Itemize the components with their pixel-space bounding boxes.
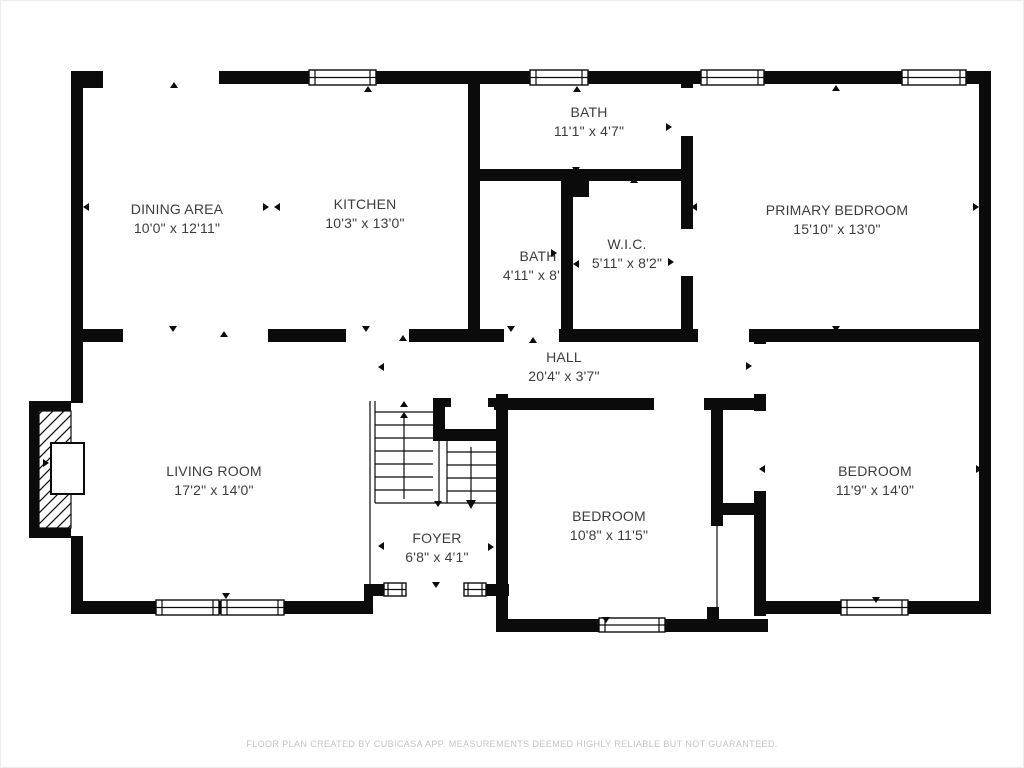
window [530, 70, 588, 85]
opening-marker-down [169, 326, 177, 332]
opening-marker-down [507, 326, 515, 332]
window [384, 583, 406, 596]
stairs [370, 401, 717, 616]
opening-marker-up [529, 337, 537, 343]
opening-marker-down [222, 593, 230, 599]
opening-marker-left [274, 203, 280, 211]
opening-marker-left [378, 363, 384, 371]
walls [29, 71, 991, 632]
opening-marker-down [362, 326, 370, 332]
floor-plan: DINING AREA 10'0" x 12'11" KITCHEN 10'3"… [0, 0, 1024, 768]
fireplace [39, 411, 84, 528]
window [156, 600, 219, 615]
opening-marker-left [573, 260, 579, 268]
opening-marker-down [434, 501, 442, 507]
window [221, 600, 284, 615]
opening-marker-up [832, 85, 840, 91]
opening-marker-down [432, 582, 440, 588]
window [701, 70, 764, 85]
window [841, 600, 908, 615]
fireplace-firebox [51, 443, 84, 494]
opening-marker-left [378, 542, 384, 550]
window [599, 618, 665, 632]
opening-marker-up [364, 86, 372, 92]
opening-marker-right [973, 203, 979, 211]
opening-marker-left [759, 465, 765, 473]
opening-marker-right [746, 362, 752, 370]
opening-marker-up [170, 82, 178, 88]
stairs-up-arrow [400, 401, 408, 407]
window [309, 70, 376, 85]
opening-marker-right [666, 123, 672, 131]
opening-marker-right [488, 543, 494, 551]
opening-marker-right [551, 249, 557, 257]
disclaimer-text: FLOOR PLAN CREATED BY CUBICASA APP. MEAS… [1, 739, 1023, 749]
opening-marker-right [263, 203, 269, 211]
stairs-down-arrow [466, 500, 476, 509]
opening-marker-right [668, 258, 674, 266]
windows [156, 70, 966, 632]
window [464, 583, 486, 596]
window [902, 70, 966, 85]
opening-marker-left [83, 203, 89, 211]
floor-plan-canvas [1, 1, 1024, 768]
opening-marker-up [573, 86, 581, 92]
opening-marker-up [220, 331, 228, 337]
opening-marker-up [399, 335, 407, 341]
opening-markers [43, 82, 982, 623]
